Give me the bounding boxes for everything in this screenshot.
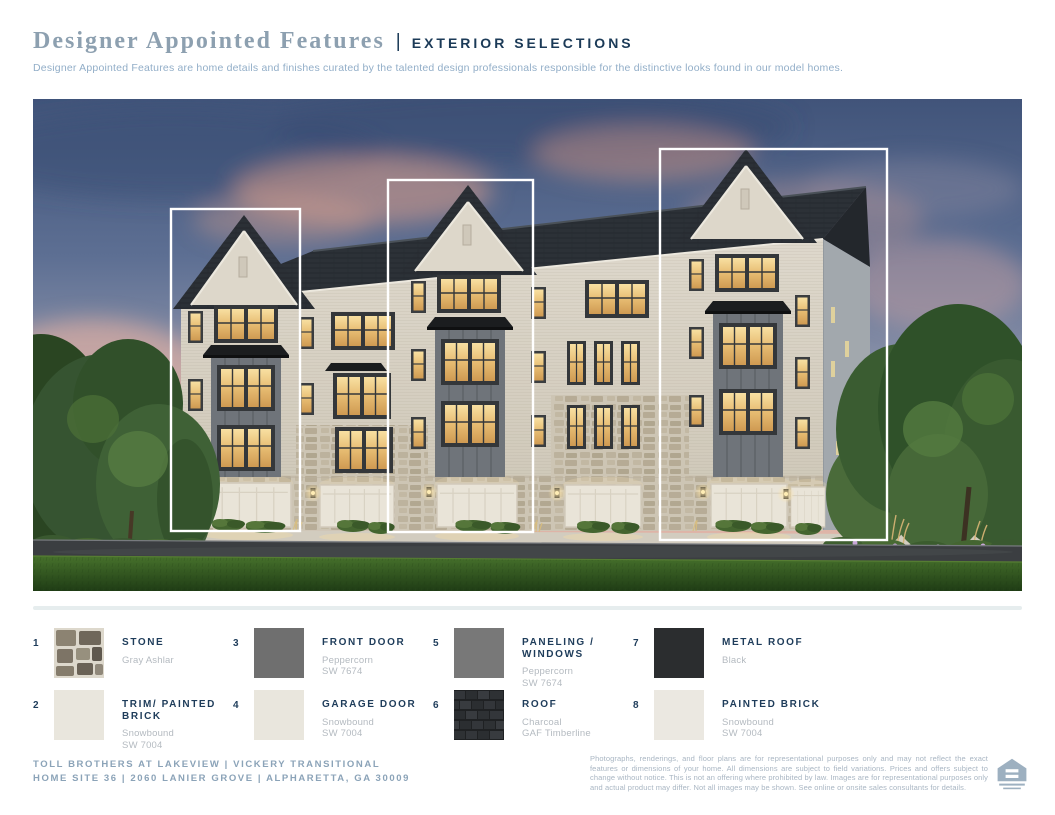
- item-line1: Snowbound: [322, 717, 374, 728]
- stone-swatch: [54, 628, 104, 678]
- item-number: 8: [633, 690, 654, 711]
- item-number: 7: [633, 628, 654, 649]
- divider-rule: [33, 606, 1022, 610]
- item-line2: SW 7004: [122, 740, 162, 751]
- item-line2: SW 7674: [322, 666, 362, 677]
- garage-door-swatch: [254, 690, 304, 740]
- exterior-rendering: [33, 99, 1022, 591]
- item-line1: Peppercorn: [522, 666, 573, 677]
- item-line2: SW 7004: [722, 728, 762, 739]
- item-name: PANELING / WINDOWS: [522, 637, 633, 660]
- shingle-texture: [454, 690, 504, 740]
- item-name: METAL ROOF: [722, 637, 833, 649]
- equal-housing-icon: [996, 757, 1028, 791]
- item-name: FRONT DOOR: [322, 637, 433, 649]
- item-name: STONE: [122, 637, 233, 649]
- item-line1: Gray Ashlar: [122, 655, 174, 666]
- legend-item-stone: 1 STONE Gray Ashlar: [33, 628, 233, 690]
- disclaimer-text: Photographs, renderings, and floor plans…: [590, 754, 988, 793]
- item-number: 1: [33, 628, 54, 649]
- item-number: 6: [433, 690, 454, 711]
- item-number: 2: [33, 690, 54, 711]
- item-line2: SW 7004: [322, 728, 362, 739]
- item-line2: SW 7674: [522, 678, 562, 689]
- item-number: 3: [233, 628, 254, 649]
- rendering-scene: [33, 99, 1022, 591]
- item-line1: Peppercorn: [322, 655, 373, 666]
- legend-item-roof: 6 ROOF Charcoal GAF Timberline: [433, 690, 633, 752]
- legend-item-garage-door: 4 GARAGE DOOR Snowbound SW 7004: [233, 690, 433, 752]
- item-number: 5: [433, 628, 454, 649]
- legend-item-painted-brick: 8 PAINTED BRICK Snowbound SW 7004: [633, 690, 833, 752]
- title-serif: Designer Appointed Features: [33, 28, 385, 55]
- flyer-page: Designer Appointed Features | EXTERIOR S…: [0, 0, 1055, 815]
- page-description: Designer Appointed Features are home det…: [33, 62, 1023, 74]
- front-door-swatch: [254, 628, 304, 678]
- paneling-swatch: [454, 628, 504, 678]
- item-line1: Snowbound: [122, 728, 174, 739]
- trim-swatch: [54, 690, 104, 740]
- footer-community-block: TOLL BROTHERS AT LAKEVIEW | VICKERY TRAN…: [33, 758, 410, 786]
- metal-roof-swatch: [654, 628, 704, 678]
- section-label: EXTERIOR SELECTIONS: [412, 35, 634, 51]
- item-line2: GAF Timberline: [522, 728, 591, 739]
- item-name: TRIM/ PAINTED BRICK: [122, 699, 233, 722]
- roof-swatch: [454, 690, 504, 740]
- item-name: GARAGE DOOR: [322, 699, 433, 711]
- header: Designer Appointed Features | EXTERIOR S…: [33, 28, 1023, 74]
- item-name: PAINTED BRICK: [722, 699, 833, 711]
- title-divider: |: [396, 31, 401, 53]
- page-title: Designer Appointed Features | EXTERIOR S…: [33, 28, 1023, 55]
- legend-item-metal-roof: 7 METAL ROOF Black: [633, 628, 833, 690]
- selections-legend: 1 STONE Gray Ashlar 3 FRONT DOOR: [33, 628, 843, 752]
- community-line: TOLL BROTHERS AT LAKEVIEW | VICKERY TRAN…: [33, 758, 410, 772]
- legend-item-trim-painted-brick: 2 TRIM/ PAINTED BRICK Snowbound SW 7004: [33, 690, 233, 752]
- address-line: HOME SITE 36 | 2060 LANIER GROVE | ALPHA…: [33, 772, 410, 786]
- item-line1: Snowbound: [722, 717, 774, 728]
- item-line1: Charcoal: [522, 717, 562, 728]
- item-name: ROOF: [522, 699, 633, 711]
- item-line1: Black: [722, 655, 746, 666]
- item-number: 4: [233, 690, 254, 711]
- stone-texture: [54, 628, 104, 678]
- painted-brick-swatch: [654, 690, 704, 740]
- legend-item-front-door: 3 FRONT DOOR Peppercorn SW 7674: [233, 628, 433, 690]
- legend-item-paneling-windows: 5 PANELING / WINDOWS Peppercorn SW 7674: [433, 628, 633, 690]
